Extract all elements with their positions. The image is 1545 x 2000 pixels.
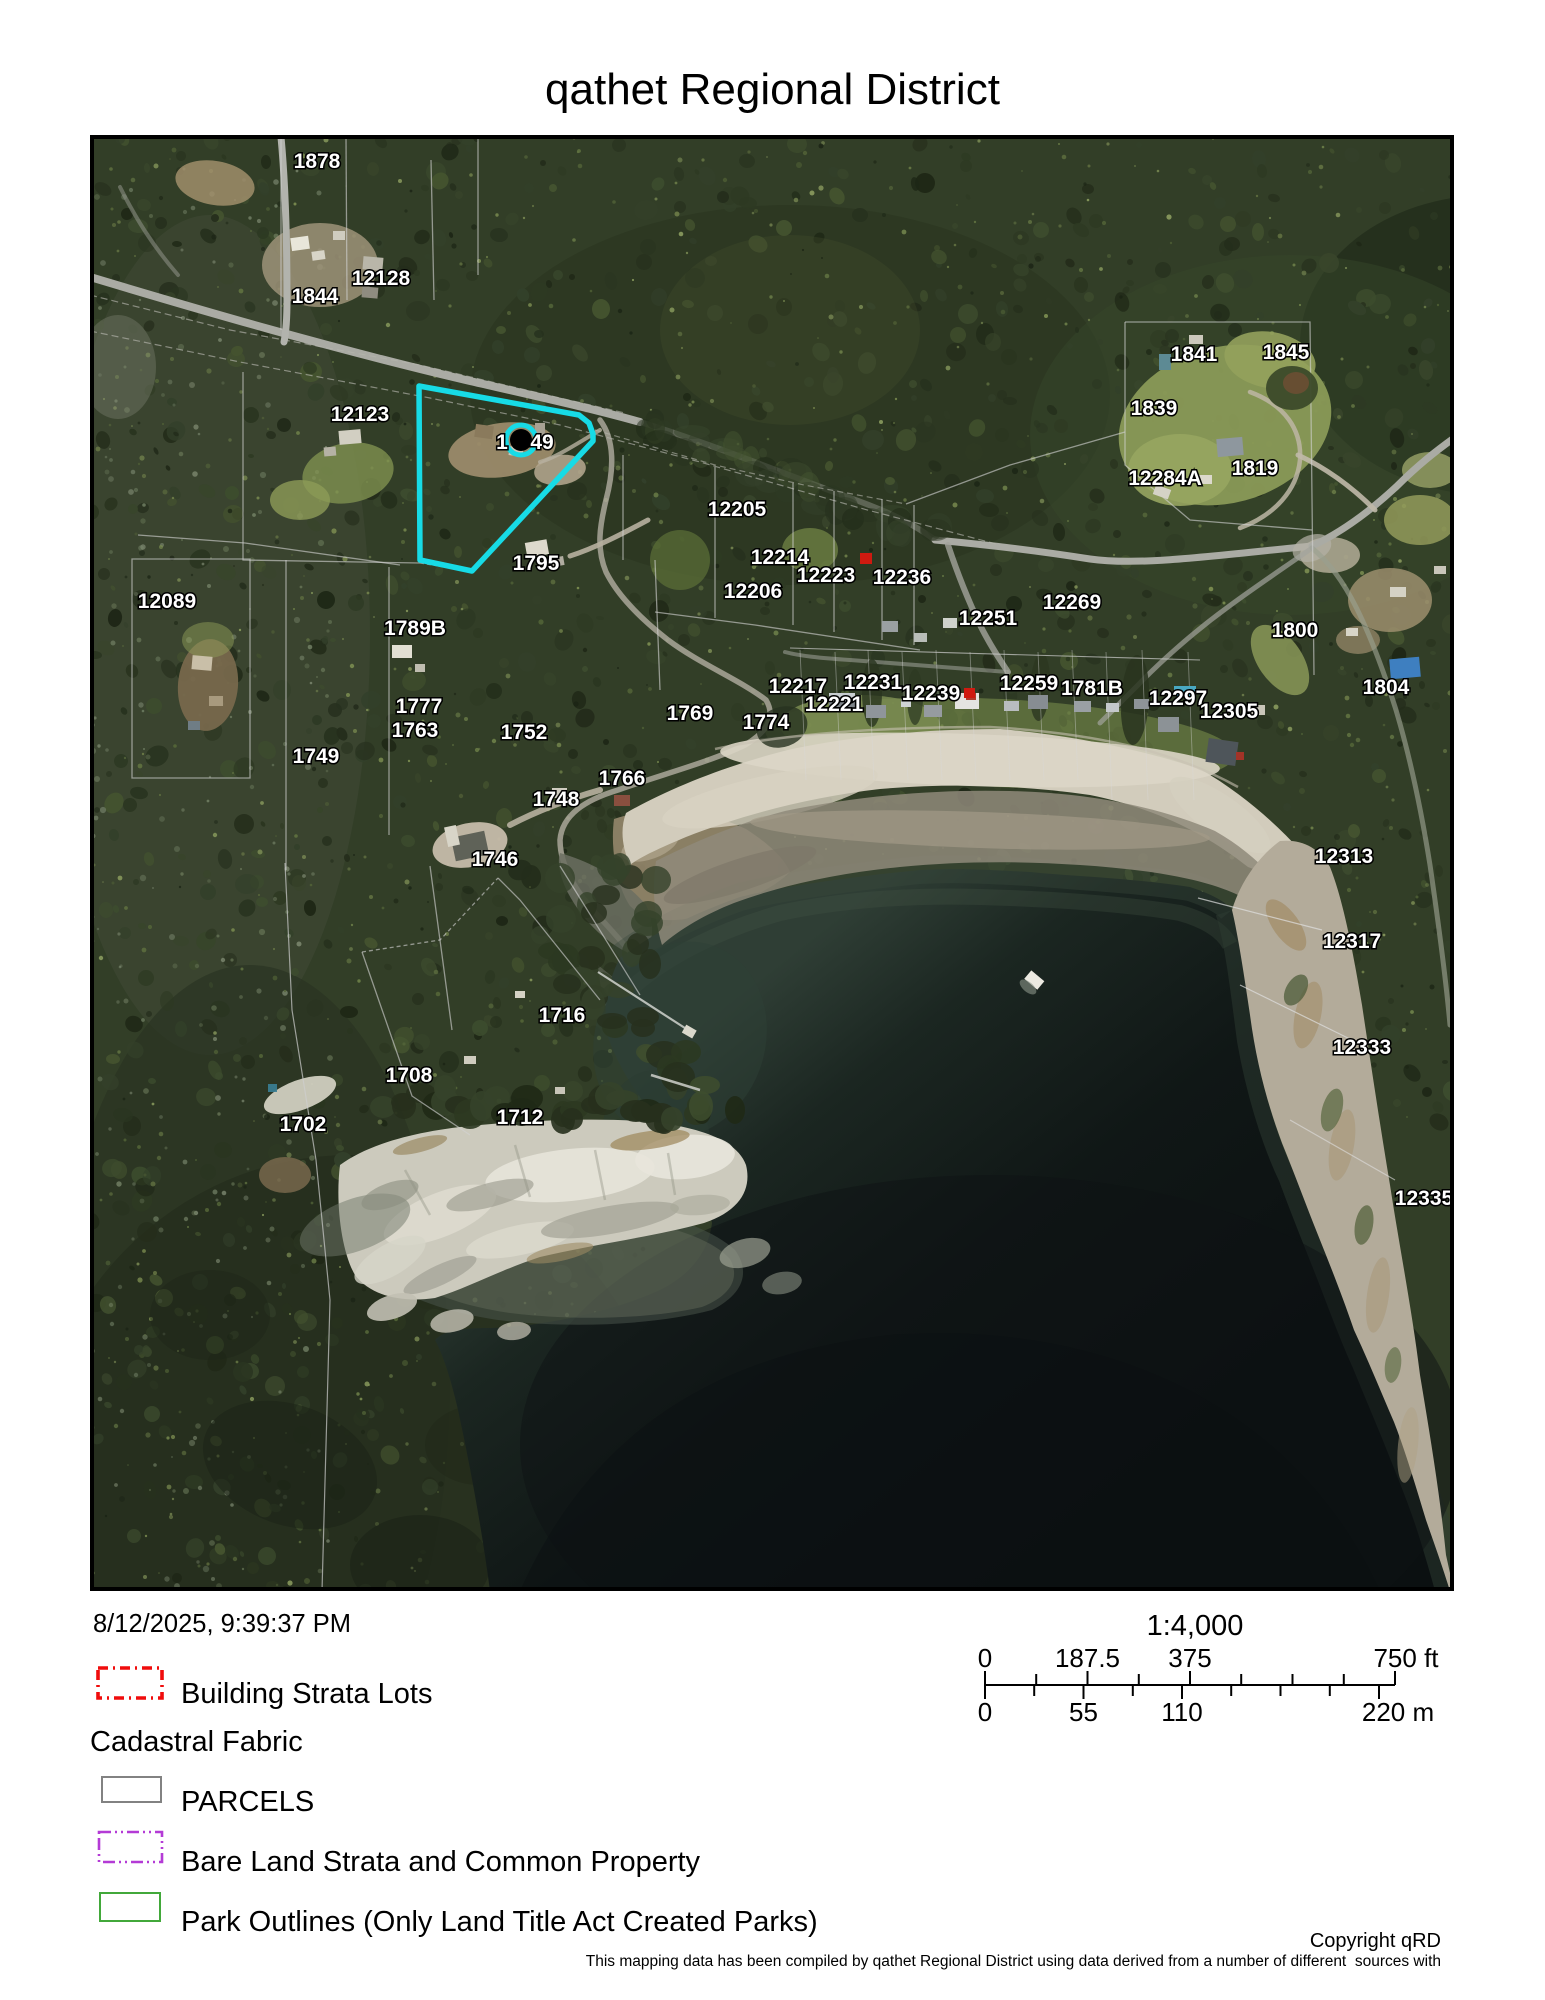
svg-text:12259: 12259 [1000,672,1058,695]
svg-text:12206: 12206 [724,580,782,603]
svg-text:1804: 1804 [1363,676,1410,699]
svg-text:12205: 12205 [708,498,767,521]
svg-text:1878: 1878 [294,150,341,173]
svg-text:1841: 1841 [1171,343,1218,366]
svg-text:12251: 12251 [959,607,1018,630]
svg-text:187.5: 187.5 [1055,1643,1120,1673]
svg-text:1795: 1795 [513,552,560,575]
svg-text:1712: 1712 [497,1106,544,1129]
svg-text:1708: 1708 [386,1064,433,1087]
svg-text:12236: 12236 [873,566,931,589]
svg-text:49: 49 [530,431,553,454]
svg-text:1774: 1774 [743,711,790,734]
svg-text:1763: 1763 [392,719,439,742]
svg-text:12231: 12231 [844,671,903,694]
svg-text:12305: 12305 [1200,700,1259,723]
svg-text:1844: 1844 [292,285,339,308]
svg-text:1800: 1800 [1272,619,1319,642]
svg-text:1766: 1766 [599,767,646,790]
svg-text:12128: 12128 [352,267,411,290]
svg-text:750 ft: 750 ft [1373,1643,1439,1673]
svg-text:12333: 12333 [1333,1036,1391,1059]
svg-text:220 m: 220 m [1362,1697,1434,1727]
svg-text:1748: 1748 [533,788,580,811]
svg-text:12221: 12221 [805,693,864,716]
svg-text:1819: 1819 [1232,457,1279,480]
svg-text:12317: 12317 [1323,930,1381,953]
svg-text:1781B: 1781B [1061,677,1123,700]
svg-text:1746: 1746 [472,848,519,871]
svg-text:1839: 1839 [1131,397,1178,420]
svg-text:0: 0 [978,1643,992,1673]
svg-text:12297: 12297 [1149,687,1207,710]
svg-text:375: 375 [1168,1643,1211,1673]
svg-text:12269: 12269 [1043,591,1101,614]
svg-text:1702: 1702 [280,1113,327,1136]
svg-text:0: 0 [978,1697,992,1727]
svg-text:1845: 1845 [1263,341,1310,364]
svg-text:55: 55 [1069,1697,1098,1727]
svg-text:1716: 1716 [539,1004,586,1027]
svg-text:12089: 12089 [138,590,196,613]
svg-text:12239: 12239 [902,682,960,705]
svg-text:1769: 1769 [667,702,714,725]
svg-text:1749: 1749 [293,745,340,768]
svg-text:1: 1 [496,431,508,454]
svg-text:110: 110 [1161,1697,1202,1727]
svg-text:1752: 1752 [501,721,548,744]
svg-text:12123: 12123 [331,403,389,426]
svg-text:12335: 12335 [1395,1187,1454,1210]
svg-text:12284A: 12284A [1128,467,1202,490]
svg-text:12313: 12313 [1315,845,1373,868]
svg-text:1777: 1777 [396,695,443,718]
svg-text:12223: 12223 [797,564,855,587]
svg-text:1789B: 1789B [384,617,446,640]
